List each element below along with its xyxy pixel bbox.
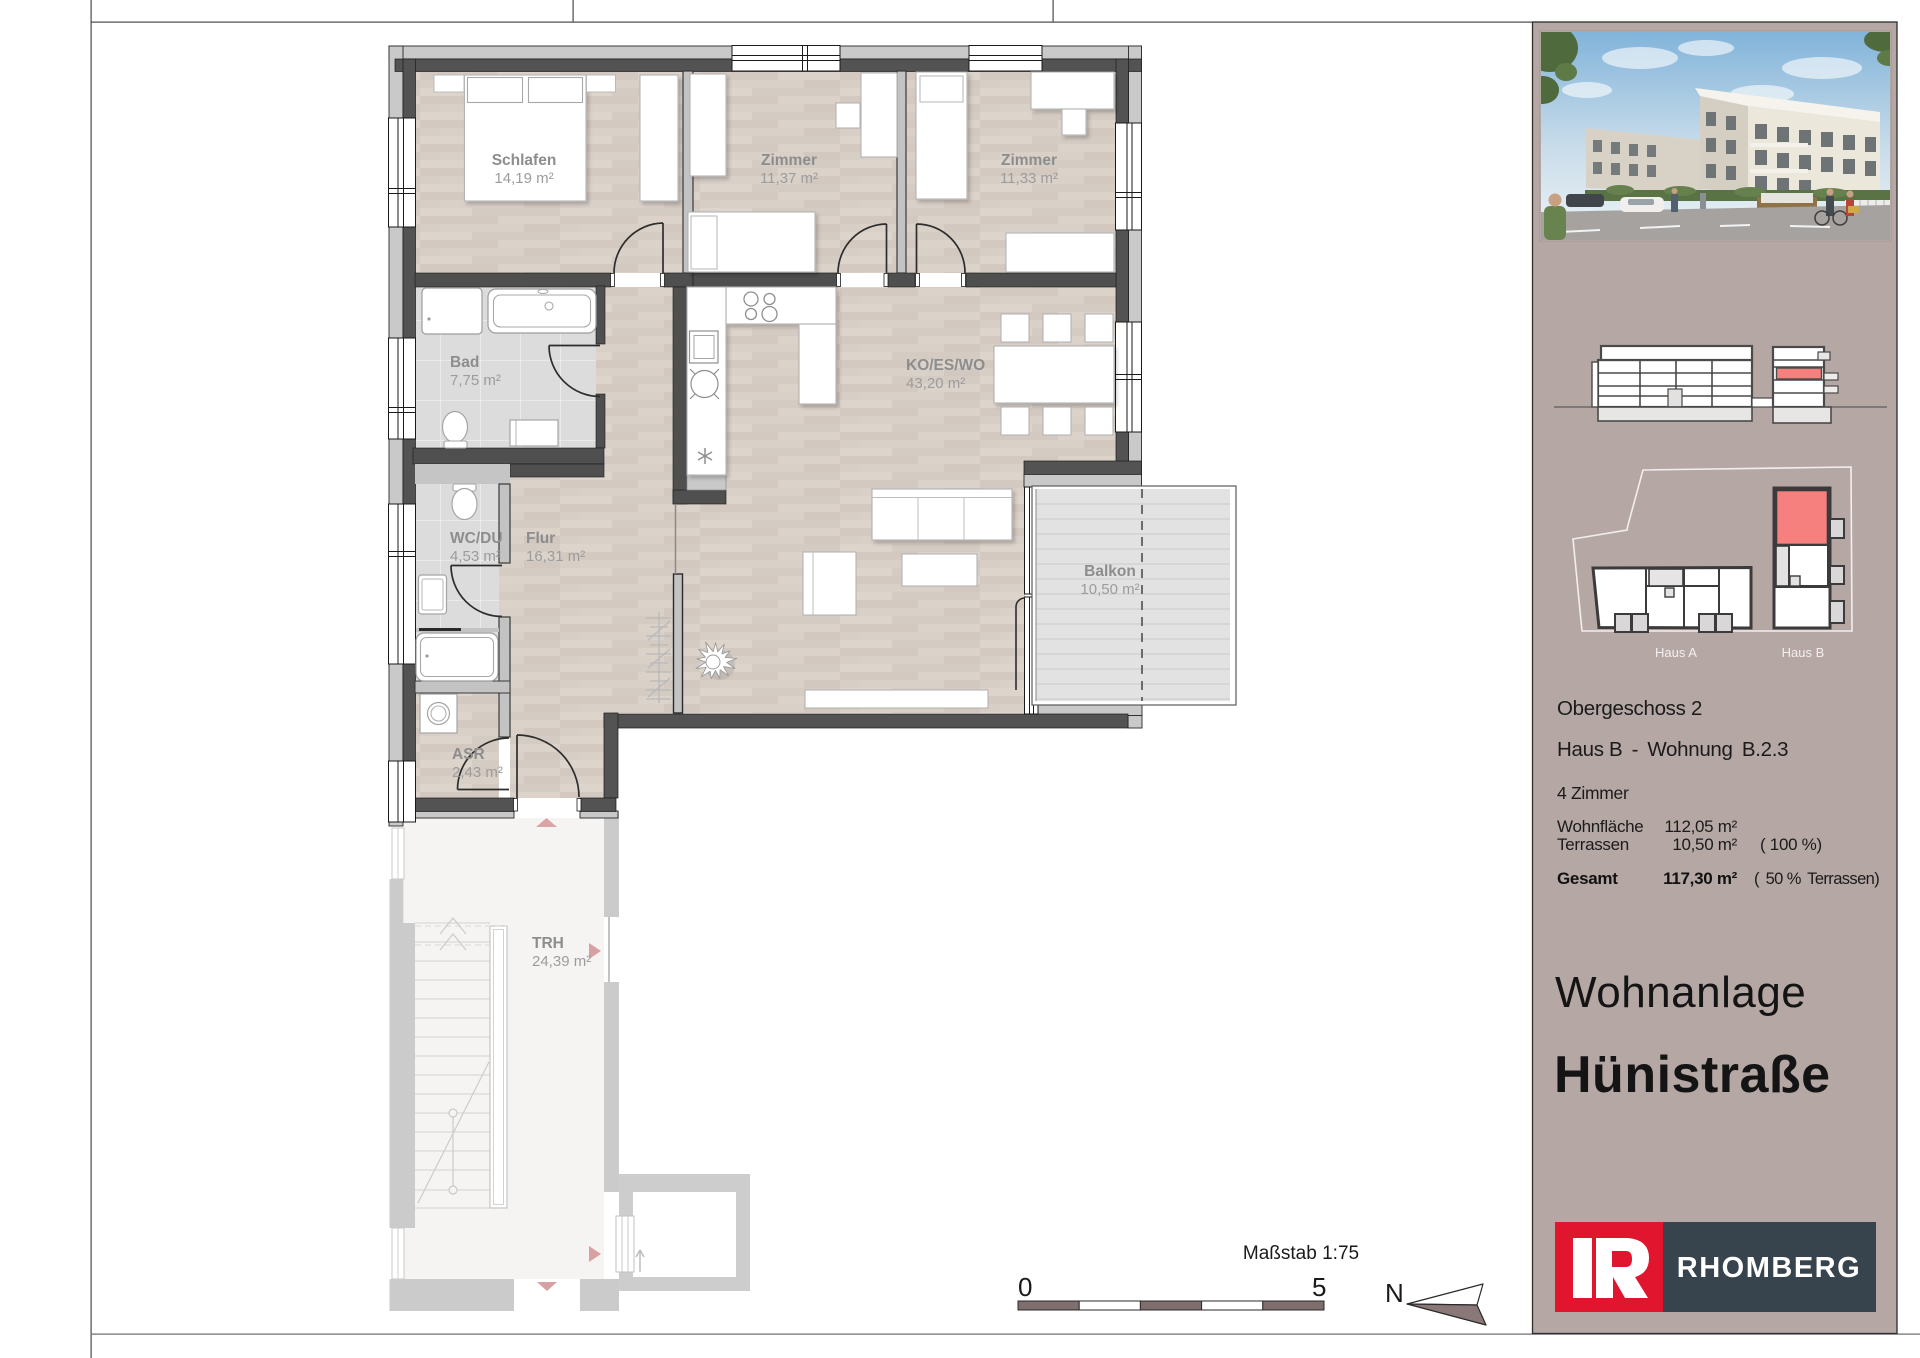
- svg-text:Flur: Flur: [526, 530, 555, 547]
- svg-text:10,50 m²: 10,50 m²: [1672, 835, 1737, 854]
- svg-text:Maßstab 1:75: Maßstab 1:75: [1243, 1243, 1359, 1264]
- svg-text:11,33 m²: 11,33 m²: [1000, 170, 1058, 187]
- svg-text:4 Zimmer: 4 Zimmer: [1557, 783, 1629, 803]
- svg-text:4,53 m²: 4,53 m²: [450, 548, 501, 565]
- svg-text:117,30 m²: 117,30 m²: [1663, 869, 1737, 888]
- svg-text:ASR: ASR: [452, 746, 485, 763]
- svg-text:Balkon: Balkon: [1084, 563, 1136, 580]
- svg-text:11,37 m²: 11,37 m²: [760, 170, 818, 187]
- svg-text:Gesamt: Gesamt: [1557, 869, 1618, 888]
- svg-text:43,20 m²: 43,20 m²: [906, 375, 965, 392]
- svg-text:16,31 m²: 16,31 m²: [526, 548, 585, 565]
- svg-text:Schlafen: Schlafen: [492, 152, 557, 169]
- svg-text:10,50 m²: 10,50 m²: [1080, 581, 1139, 598]
- svg-text:14,19 m²: 14,19 m²: [494, 170, 553, 187]
- svg-text:Wohnanlage: Wohnanlage: [1555, 968, 1806, 1017]
- svg-text:Zimmer: Zimmer: [761, 152, 817, 169]
- svg-text:0: 0: [1018, 1272, 1032, 1302]
- svg-text:24,39 m²: 24,39 m²: [532, 953, 591, 970]
- svg-text:Bad: Bad: [450, 354, 479, 371]
- svg-text:RHOMBERG: RHOMBERG: [1677, 1252, 1861, 1284]
- svg-text:WC/DU: WC/DU: [450, 530, 503, 547]
- svg-text:Terrassen: Terrassen: [1557, 835, 1629, 854]
- svg-text:Wohnfläche: Wohnfläche: [1557, 817, 1643, 836]
- svg-text:Zimmer: Zimmer: [1001, 152, 1057, 169]
- svg-text:7,75 m²: 7,75 m²: [450, 372, 501, 389]
- svg-text:112,05 m²: 112,05 m²: [1664, 817, 1737, 836]
- svg-text:Haus A: Haus A: [1655, 645, 1697, 660]
- svg-text:2,43 m²: 2,43 m²: [452, 764, 503, 781]
- svg-text:TRH: TRH: [532, 935, 564, 952]
- svg-text:( 100 %): ( 100 %): [1760, 835, 1822, 854]
- svg-text:( 50 % Terrassen): ( 50 % Terrassen): [1754, 870, 1879, 888]
- svg-text:Obergeschoss 2: Obergeschoss 2: [1557, 697, 1702, 720]
- svg-text:N: N: [1385, 1278, 1404, 1308]
- svg-text:Haus B - Wohnung B.2.3: Haus B - Wohnung B.2.3: [1557, 738, 1788, 761]
- svg-text:5: 5: [1312, 1272, 1326, 1302]
- svg-text:KO/ES/WO: KO/ES/WO: [906, 357, 985, 374]
- svg-text:Hünistraße: Hünistraße: [1554, 1046, 1831, 1104]
- svg-text:Haus B: Haus B: [1782, 645, 1825, 660]
